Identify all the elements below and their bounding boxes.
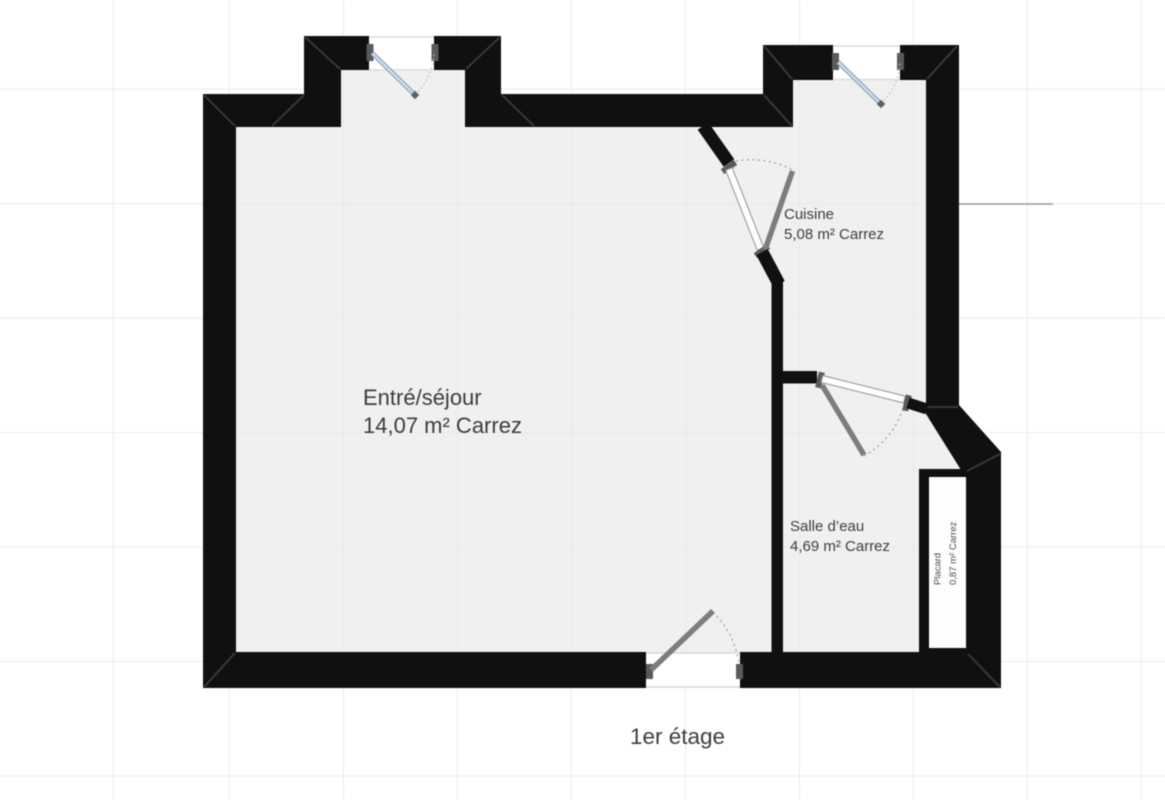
svg-text:0,87 m² Carrez: 0,87 m² Carrez: [948, 521, 959, 585]
svg-text:14,07 m² Carrez: 14,07 m² Carrez: [363, 413, 522, 438]
svg-text:Cuisine: Cuisine: [784, 206, 834, 223]
svg-text:5,08 m² Carrez: 5,08 m² Carrez: [784, 226, 884, 243]
svg-text:Placard: Placard: [933, 553, 944, 585]
svg-text:4,69 m² Carrez: 4,69 m² Carrez: [790, 538, 890, 555]
svg-text:Salle d’eau: Salle d’eau: [790, 518, 864, 535]
svg-text:Entré/séjour: Entré/séjour: [363, 385, 482, 410]
svg-text:1er étage: 1er étage: [630, 724, 725, 749]
